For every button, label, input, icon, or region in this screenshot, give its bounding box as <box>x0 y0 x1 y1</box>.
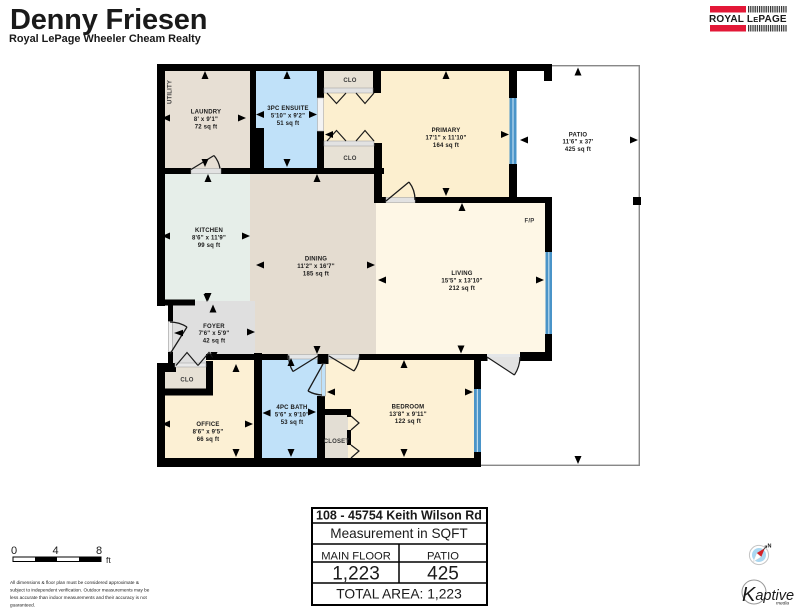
svg-text:LIVING: LIVING <box>451 271 472 277</box>
svg-text:13'8" x 9'11": 13'8" x 9'11" <box>389 412 427 418</box>
svg-text:N: N <box>768 544 772 550</box>
svg-text:42 sq ft: 42 sq ft <box>203 338 226 344</box>
svg-text:15'5" x 13'10": 15'5" x 13'10" <box>441 278 482 284</box>
svg-text:UTILITY: UTILITY <box>168 80 174 104</box>
svg-text:17'1" x 11'10": 17'1" x 11'10" <box>425 135 466 141</box>
svg-text:Denny Friesen: Denny Friesen <box>10 4 207 36</box>
svg-text:KITCHEN: KITCHEN <box>195 228 223 234</box>
svg-text:212 sq ft: 212 sq ft <box>449 286 475 292</box>
svg-text:108 - 45754 Keith Wilson Rd: 108 - 45754 Keith Wilson Rd <box>316 509 482 523</box>
svg-text:FOYER: FOYER <box>203 324 225 330</box>
svg-text:PATIO: PATIO <box>427 550 459 562</box>
svg-text:Royal LePage Wheeler Cheam Rea: Royal LePage Wheeler Cheam Realty <box>9 33 201 45</box>
svg-text:PRIMARY: PRIMARY <box>432 128 461 134</box>
svg-text:CLO: CLO <box>343 156 356 162</box>
svg-text:164 sq ft: 164 sq ft <box>433 143 459 149</box>
svg-text:Measurement in SQFT: Measurement in SQFT <box>330 526 468 541</box>
svg-text:guaranteed.: guaranteed. <box>10 603 35 608</box>
svg-text:DINING: DINING <box>305 257 327 263</box>
svg-text:66 sq ft: 66 sq ft <box>197 437 220 443</box>
svg-text:F/P: F/P <box>525 219 535 225</box>
svg-text:OFFICE: OFFICE <box>196 422 219 428</box>
svg-text:53 sq ft: 53 sq ft <box>281 420 304 426</box>
svg-text:MAIN FLOOR: MAIN FLOOR <box>321 550 391 562</box>
svg-text:PATIO: PATIO <box>569 132 588 138</box>
svg-text:LAUNDRY: LAUNDRY <box>191 110 222 116</box>
svg-text:72 sq ft: 72 sq ft <box>195 124 218 130</box>
svg-text:media: media <box>776 601 789 607</box>
svg-text:CLO: CLO <box>180 378 193 384</box>
svg-text:3PC ENSUITE: 3PC ENSUITE <box>267 106 309 112</box>
svg-text:8'6" x 11'9": 8'6" x 11'9" <box>192 235 226 241</box>
svg-text:5'10" x 9'2": 5'10" x 9'2" <box>271 113 305 119</box>
svg-text:less accurate than indoor meas: less accurate than indoor measurements a… <box>10 595 147 600</box>
svg-text:7'6" x 5'9": 7'6" x 5'9" <box>199 331 230 337</box>
svg-text:8: 8 <box>96 545 102 557</box>
svg-text:185 sq ft: 185 sq ft <box>303 271 329 277</box>
svg-text:1,223: 1,223 <box>332 564 380 585</box>
svg-text:subject to independent verific: subject to independent verification. Out… <box>10 588 150 593</box>
svg-text:8'6" x 9'5": 8'6" x 9'5" <box>193 429 224 435</box>
svg-text:51 sq ft: 51 sq ft <box>277 121 300 127</box>
svg-text:ft: ft <box>106 555 111 565</box>
svg-text:CLO: CLO <box>343 78 356 84</box>
svg-text:5'6" x 9'10": 5'6" x 9'10" <box>275 412 309 418</box>
svg-text:BEDROOM: BEDROOM <box>392 404 425 410</box>
svg-text:99 sq ft: 99 sq ft <box>198 243 221 249</box>
svg-text:11'6" x 37': 11'6" x 37' <box>563 140 594 146</box>
svg-text:425 sq ft: 425 sq ft <box>565 147 591 153</box>
svg-text:122 sq ft: 122 sq ft <box>395 419 421 425</box>
svg-text:425: 425 <box>427 564 459 585</box>
svg-text:4PC BATH: 4PC BATH <box>276 405 307 411</box>
svg-text:11'2" x 16'7": 11'2" x 16'7" <box>297 264 335 270</box>
svg-text:All dimensions & floor plan mu: All dimensions & floor plan must be cons… <box>10 580 140 585</box>
svg-text:CLOSET: CLOSET <box>324 439 350 445</box>
svg-text:4: 4 <box>53 545 59 557</box>
svg-text:ROYAL LEPAGE: ROYAL LEPAGE <box>709 14 787 25</box>
svg-text:TOTAL AREA: 1,223: TOTAL AREA: 1,223 <box>336 587 462 602</box>
svg-text:8' x 9'1": 8' x 9'1" <box>194 117 218 123</box>
svg-text:0: 0 <box>11 545 17 557</box>
